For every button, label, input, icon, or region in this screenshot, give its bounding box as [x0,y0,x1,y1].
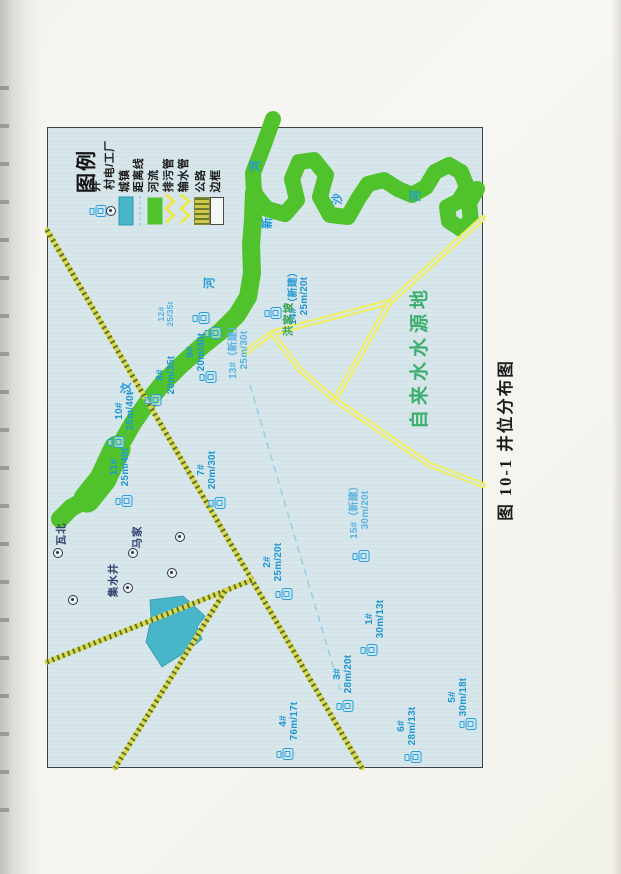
well-marker [411,751,422,763]
well-label: 3#28m/20t [333,655,355,694]
well-marker [122,495,133,507]
well-marker [151,394,162,406]
well-label: 2#25m/20t [263,543,285,582]
well-marker [271,307,282,319]
river-main [253,119,477,229]
well-label: 1#30m/13t [365,600,387,639]
river-name-char: 河 [204,277,216,289]
village-symbol [175,532,185,542]
well-label: 9#20m/40t [186,333,208,372]
road-yellow [246,218,483,485]
town-polygon [146,596,205,667]
river-name-char: 新 [262,217,274,229]
river-name-char: 汶 [121,382,133,394]
legend-label-town-swatch: 城镇 [120,169,132,192]
village-name-wabei: 瓦北 [56,523,67,546]
legend-village-symbol [106,206,116,216]
well-label: 12#25/35t [157,301,175,326]
village-name-majia: 马家 [132,526,143,549]
well-marker [206,371,217,383]
well-label: 4#76m/17t [279,702,301,741]
well-label: 5#30m/18t [448,678,470,717]
well-label: 6#28m/13t [397,707,419,746]
well-label: 15#（新建）30m/20t [350,481,372,539]
village-symbol [128,548,138,558]
label-water-source-area: 自来水水源地 [411,285,432,429]
legend-label-river-swatch: 河流 [149,169,161,192]
legend-label-distance-line: 距离线 [134,158,146,193]
legend-label-water-pipe: 输水管 [179,158,191,193]
well-marker [466,718,477,730]
village-name-hongjiapo: 洪家坡 [283,302,294,337]
well-label: 8#20m/35t [156,356,178,395]
well-label: 13#（新建）25m/30t [229,321,251,379]
legend-label-well-icon: 井 [91,180,103,192]
legend-label-border-swatch: 边框 [211,169,223,192]
label-collector-well: 集水井 [108,563,119,598]
well-label: 11#25m/40t [110,448,132,487]
legend-water-pipe [178,193,192,230]
village-symbol [68,595,78,605]
binding-ticks [0,52,9,842]
well-marker [215,497,226,509]
well-marker [283,748,294,760]
scanned-page: 图例 图 10-1 井位分布图 11#25m/40t10#25m/40t8#20… [0,0,621,874]
well-marker [114,436,125,448]
legend-border-swatch [210,197,224,225]
well-label: 7#20m/30t [197,451,219,490]
legend-sewage-pipe [163,193,177,230]
village-symbol [167,568,177,578]
well-marker [343,700,354,712]
legend-label-road-swatch: 公路 [196,169,208,192]
river-name-char: 河 [250,160,262,172]
legend-label-sewage-pipe: 排污管 [164,158,176,193]
legend-river-swatch [148,198,163,225]
well-marker [199,312,210,324]
well-label: 10#25m/40t [115,392,137,431]
well-marker [282,588,293,600]
legend-town-swatch [119,197,134,226]
village-symbol [53,548,63,558]
well-marker [367,644,378,656]
legend-label-village-symbol: 村电/工厂 [105,140,117,190]
legend-road-swatch [194,197,210,225]
well-marker [359,550,370,562]
river-name-char: 沙 [332,193,344,205]
legend-distance-line [140,196,141,226]
page-edge-shadow [611,0,621,874]
well-marker [211,327,222,339]
distance-line [250,385,340,690]
legend-well-icon [92,205,103,217]
village-symbol [123,583,133,593]
river-name-char: 河 [410,190,422,202]
figure-caption: 图 10-1 井位分布图 [497,359,515,521]
